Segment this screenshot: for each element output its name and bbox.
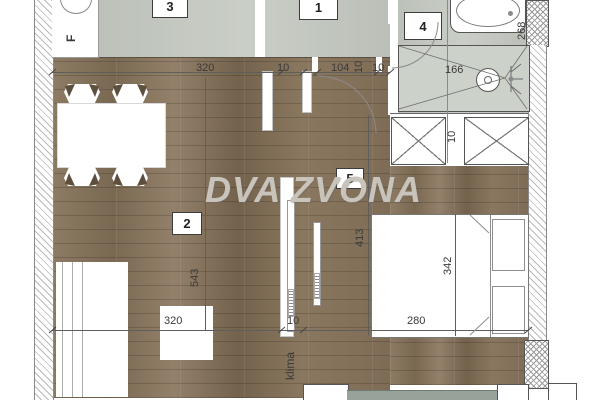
dining-table bbox=[57, 103, 166, 168]
dim-wardrobe-10: 10 bbox=[447, 119, 458, 143]
sliding-door-panel bbox=[313, 222, 321, 306]
room-label-1: 1 bbox=[299, 0, 338, 20]
window-strip bbox=[347, 390, 505, 400]
chair bbox=[112, 83, 148, 105]
dim-line-bottom bbox=[52, 330, 528, 331]
door-handle-icon bbox=[288, 289, 294, 317]
dim-living-543: 543 bbox=[190, 251, 201, 287]
room-label-4: 4 bbox=[404, 12, 442, 40]
dim-bottom-280: 280 bbox=[407, 316, 425, 327]
toilet-drain-icon bbox=[484, 76, 492, 84]
dim-bath-166: 166 bbox=[445, 65, 463, 76]
dim-top-320: 320 bbox=[196, 63, 214, 74]
bathtub bbox=[450, 0, 526, 33]
room-4-number: 4 bbox=[419, 19, 426, 34]
dim-bedroom-342: 342 bbox=[443, 237, 454, 275]
bed-headboard-line bbox=[490, 215, 491, 337]
room-3-number: 3 bbox=[166, 0, 173, 14]
sliding-door-panel bbox=[287, 200, 295, 332]
fridge-label: F bbox=[66, 16, 77, 42]
room-label-3: 3 bbox=[152, 0, 188, 18]
bathtub-drain-icon bbox=[508, 11, 513, 16]
klima-label: klima bbox=[285, 342, 296, 380]
door-jamb-left bbox=[312, 57, 318, 73]
door-handle-icon bbox=[314, 273, 320, 299]
dim-bedroom-413: 413 bbox=[355, 209, 366, 247]
wardrobe-cabinet-right bbox=[464, 117, 529, 165]
dim-top-10b: 10 bbox=[354, 51, 365, 73]
window-sill-right bbox=[497, 384, 529, 400]
chair bbox=[64, 83, 100, 105]
shower-area bbox=[398, 45, 530, 112]
wall-hall-left bbox=[263, 72, 272, 130]
floor-plan: F 320 bbox=[0, 0, 600, 400]
toilet bbox=[476, 68, 500, 92]
wall-bath-lower bbox=[388, 66, 398, 115]
pillow bbox=[492, 286, 525, 334]
dim-bath-268: 268 bbox=[517, 0, 528, 40]
room-label-2: 2 bbox=[172, 212, 202, 235]
tile-floor-kitchen bbox=[98, 0, 390, 57]
watermark: DVA ZVONA bbox=[205, 169, 422, 211]
chair bbox=[112, 165, 148, 187]
wall-right bbox=[528, 45, 547, 340]
dim-line-413 bbox=[368, 115, 369, 335]
dim-bottom-10: 10 bbox=[287, 316, 299, 327]
room-2-number: 2 bbox=[183, 216, 190, 231]
wall-hall-right bbox=[303, 72, 311, 112]
dim-line-342 bbox=[455, 214, 456, 336]
wall-corner-top-right bbox=[526, 0, 549, 47]
pillar bbox=[548, 383, 577, 400]
pillow bbox=[492, 219, 525, 271]
wall-bath-upper bbox=[388, 0, 398, 24]
dim-top-10a: 10 bbox=[277, 63, 289, 74]
window-sill-left bbox=[303, 384, 349, 400]
dim-top-10c: 10 bbox=[372, 63, 384, 74]
wall-kitchen-divider bbox=[255, 0, 265, 57]
wall-corner-bottom-right bbox=[524, 340, 549, 389]
room-1-number: 1 bbox=[315, 0, 322, 15]
dim-bottom-320: 320 bbox=[164, 316, 182, 327]
dim-top-104: 104 bbox=[331, 63, 349, 74]
wall-left bbox=[34, 0, 54, 400]
chair bbox=[64, 165, 100, 187]
wardrobe-cabinet-left bbox=[391, 117, 446, 165]
